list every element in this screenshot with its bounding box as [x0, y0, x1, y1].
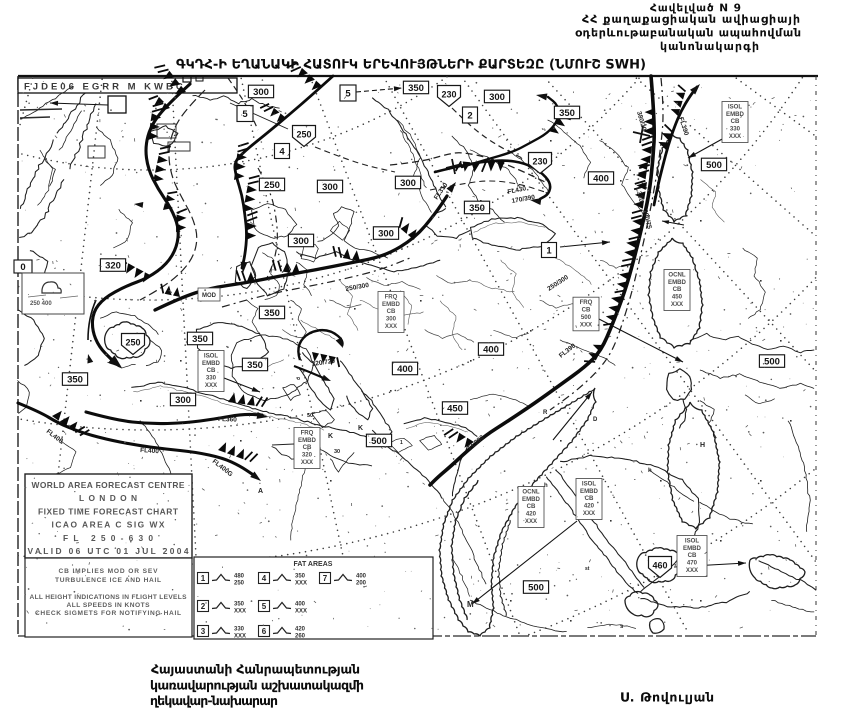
svg-text:EMBD: EMBD: [522, 496, 541, 503]
svg-text:500: 500: [371, 436, 387, 447]
svg-text:300: 300: [489, 92, 505, 103]
svg-text:7: 7: [323, 574, 328, 583]
svg-text:CB IMPLIES MOD OR SEV: CB IMPLIES MOD OR SEV: [59, 568, 159, 575]
svg-text:CB: CB: [688, 552, 697, 559]
svg-text:XXX: XXX: [729, 133, 742, 140]
svg-text:200: 200: [356, 581, 367, 587]
svg-text:1: 1: [201, 574, 206, 583]
svg-text:EMBD: EMBD: [202, 360, 221, 367]
svg-text:3: 3: [201, 627, 206, 636]
svg-text:FJDE06 EGRR M KWBC: FJDE06 EGRR M KWBC: [24, 82, 186, 93]
svg-text:4: 4: [279, 146, 285, 157]
svg-text:5: 5: [262, 602, 267, 611]
svg-text:FL360: FL360: [218, 416, 237, 424]
svg-text:FAT AREAS: FAT AREAS: [294, 561, 333, 568]
svg-text:30: 30: [334, 449, 340, 455]
svg-text:XXX: XXX: [583, 510, 596, 517]
svg-text:H: H: [700, 442, 705, 449]
svg-text:330: 330: [730, 126, 741, 133]
svg-text:TURBULENCE ICE AND HAIL: TURBULENCE ICE AND HAIL: [55, 577, 161, 584]
svg-text:FRQ: FRQ: [580, 299, 593, 306]
svg-text:XXX: XXX: [205, 382, 218, 389]
svg-text:ISOL: ISOL: [204, 352, 218, 359]
svg-text:A: A: [258, 488, 263, 495]
svg-text:EMBD: EMBD: [580, 488, 599, 495]
svg-text:EMBD: EMBD: [683, 545, 702, 552]
svg-text:400: 400: [356, 574, 367, 580]
svg-text:CB: CB: [582, 307, 591, 314]
svg-text:CB: CB: [207, 367, 216, 374]
svg-text:OCNL: OCNL: [522, 488, 540, 495]
svg-text:5: 5: [345, 88, 351, 99]
svg-text:K: K: [358, 425, 363, 432]
svg-text:300: 300: [378, 228, 394, 239]
svg-text:XXX: XXX: [301, 459, 314, 466]
svg-text:400: 400: [295, 602, 306, 608]
svg-text:320: 320: [105, 260, 121, 271]
svg-text:FIXED TIME FORECAST CHART: FIXED TIME FORECAST CHART: [38, 506, 179, 516]
svg-text:420: 420: [526, 511, 537, 518]
svg-text:XXX: XXX: [385, 323, 398, 330]
svg-text:300: 300: [253, 87, 269, 98]
svg-text:400: 400: [593, 173, 609, 184]
svg-text:2: 2: [467, 110, 472, 121]
svg-text:XXX: XXX: [525, 518, 538, 525]
svg-text:450: 450: [672, 294, 683, 301]
svg-text:ICAO AREA C SIG WX: ICAO AREA C SIG WX: [52, 520, 165, 530]
svg-text:480: 480: [234, 574, 245, 580]
svg-text:CB: CB: [585, 495, 594, 502]
svg-text:st: st: [585, 566, 590, 572]
svg-text:ISOL: ISOL: [582, 480, 596, 487]
svg-text:CB: CB: [731, 118, 740, 125]
svg-text:300: 300: [386, 316, 397, 323]
svg-text:500: 500: [581, 314, 592, 321]
svg-text:XXX: XXX: [580, 321, 593, 328]
svg-text:CB: CB: [527, 503, 536, 510]
svg-text:2: 2: [201, 602, 206, 611]
svg-text:250: 250: [264, 180, 280, 191]
svg-text:300: 300: [293, 236, 309, 247]
svg-text:420: 420: [295, 627, 306, 633]
svg-text:K: K: [328, 433, 333, 440]
svg-text:350: 350: [234, 602, 245, 608]
svg-text:CB: CB: [673, 286, 682, 293]
svg-text:o: o: [297, 376, 300, 382]
svg-text:XXX: XXX: [671, 301, 684, 308]
svg-text:EMBD: EMBD: [668, 279, 687, 286]
svg-text:260: 260: [295, 634, 306, 640]
svg-text:1: 1: [400, 440, 403, 446]
svg-text:350: 350: [192, 334, 208, 345]
svg-text:250 400: 250 400: [30, 301, 52, 307]
svg-text:ALL SPEEDS IN KNOTS: ALL SPEEDS IN KNOTS: [67, 602, 151, 609]
svg-text:CHECK SIGMETS FOR NOTIFYING HA: CHECK SIGMETS FOR NOTIFYING HAIL: [35, 610, 181, 617]
svg-text:400: 400: [397, 364, 413, 375]
svg-text:250: 250: [234, 581, 245, 587]
svg-text:500: 500: [706, 160, 722, 171]
svg-text:450: 450: [447, 403, 463, 414]
svg-text:350: 350: [295, 574, 306, 580]
svg-text:ISOL: ISOL: [728, 103, 742, 110]
svg-text:320: 320: [302, 452, 313, 459]
svg-text:XXX: XXX: [234, 609, 246, 615]
svg-text:R: R: [543, 410, 548, 416]
svg-text:330: 330: [234, 627, 245, 633]
svg-text:OCNL: OCNL: [668, 271, 686, 278]
svg-text:XXX: XXX: [295, 609, 307, 615]
svg-text:350: 350: [408, 83, 424, 94]
svg-text:EMBD: EMBD: [298, 437, 317, 444]
svg-text:CB: CB: [387, 308, 396, 315]
svg-text:EMBD: EMBD: [726, 111, 745, 118]
svg-text:4: 4: [262, 574, 267, 583]
svg-text:230: 230: [441, 90, 456, 100]
svg-text:50: 50: [307, 413, 313, 419]
svg-text:CB: CB: [303, 444, 312, 451]
svg-text:FL400: FL400: [140, 447, 160, 455]
svg-text:FRQ: FRQ: [301, 429, 314, 436]
svg-text:470: 470: [687, 560, 698, 567]
svg-text:M: M: [467, 600, 474, 609]
svg-text:1: 1: [546, 245, 552, 256]
svg-text:XXX: XXX: [295, 581, 307, 587]
svg-text:330: 330: [206, 375, 217, 382]
svg-text:MOD: MOD: [202, 293, 217, 299]
svg-text:420: 420: [584, 503, 595, 510]
svg-text:EMBD: EMBD: [382, 301, 401, 308]
svg-text:460: 460: [652, 561, 667, 571]
svg-text:500: 500: [528, 582, 544, 593]
svg-text:FRQ: FRQ: [385, 293, 398, 300]
svg-text:250: 250: [296, 130, 311, 140]
svg-text:ISOL: ISOL: [685, 537, 699, 544]
svg-text:XXX: XXX: [234, 634, 246, 640]
svg-text:500: 500: [764, 356, 780, 367]
svg-text:350: 350: [67, 374, 83, 385]
svg-text:WORLD AREA FORECAST CENTRE: WORLD AREA FORECAST CENTRE: [32, 480, 185, 490]
svg-text:250: 250: [125, 338, 140, 348]
svg-text:0: 0: [20, 262, 25, 273]
svg-text:h: h: [648, 468, 652, 474]
svg-text:350: 350: [559, 108, 575, 119]
svg-text:300: 300: [175, 395, 191, 406]
svg-text:350: 350: [247, 360, 263, 371]
svg-text:300: 300: [322, 182, 338, 193]
svg-text:350: 350: [264, 308, 280, 319]
svg-text:XXX: XXX: [686, 567, 699, 574]
svg-text:h: h: [544, 483, 548, 489]
svg-text:6: 6: [262, 627, 267, 636]
svg-text:5: 5: [242, 109, 248, 120]
svg-text:300: 300: [400, 178, 416, 189]
svg-text:ALL HEIGHT INDICATIONS IN FLIG: ALL HEIGHT INDICATIONS IN FLIGHT LEVELS: [30, 594, 188, 601]
svg-text:VALID 06 UTC 01 JUL 2004: VALID 06 UTC 01 JUL 2004: [28, 546, 189, 556]
svg-text:230: 230: [532, 157, 547, 167]
